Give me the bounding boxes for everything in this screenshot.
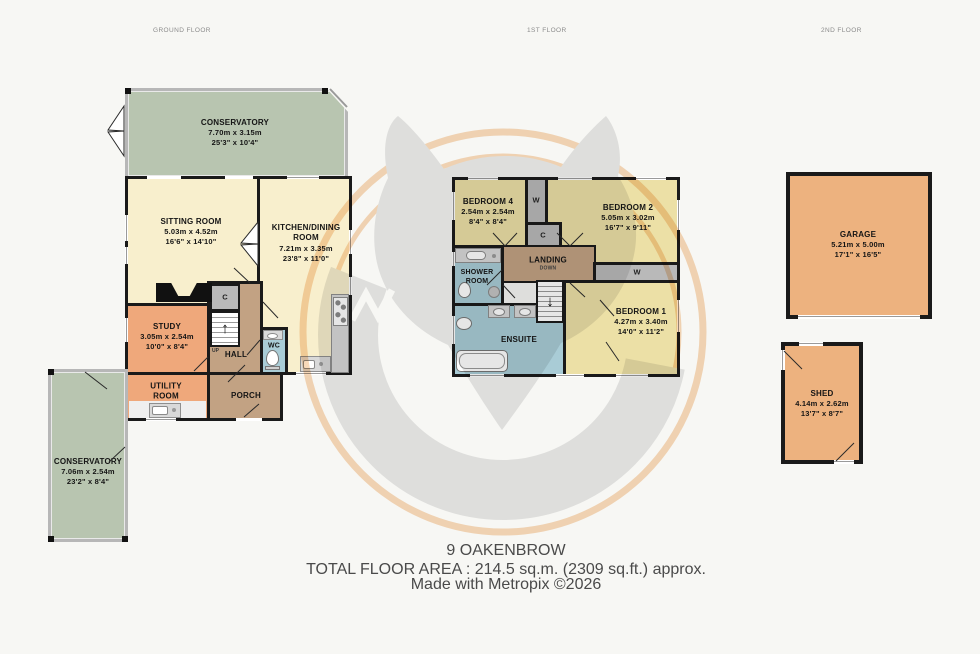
floor-label-first: 1ST FLOOR	[527, 27, 567, 34]
shed-window	[799, 342, 823, 346]
metropix-credit: Made with Metropix ©2026	[26, 576, 980, 594]
room-label-shed: SHED 4.14m x 2.62m 13'7" x 8'7"	[783, 389, 861, 419]
room-label-garage: GARAGE 5.21m x 5.00m 17'1" x 16'5"	[808, 230, 908, 260]
shed-doorway	[781, 350, 785, 370]
property-name: 9 OAKENBROW	[26, 542, 980, 560]
shed-doorway	[834, 460, 854, 464]
floor-label-ground: GROUND FLOOR	[153, 27, 211, 34]
garage-door	[798, 315, 920, 319]
floorplan-canvas: GROUND FLOOR 1ST FLOOR 2ND FLOOR C ↑ UP	[0, 0, 980, 654]
floor-label-second: 2ND FLOOR	[821, 27, 862, 34]
